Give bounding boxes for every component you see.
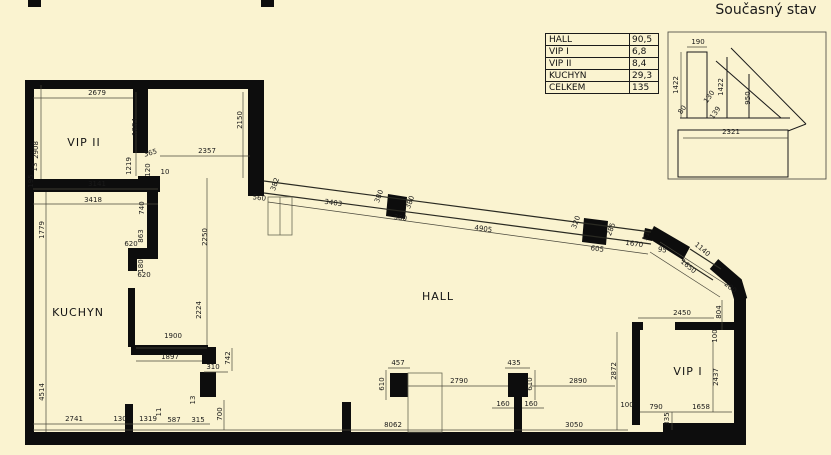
dim-label: 610 bbox=[526, 377, 534, 390]
dim-label: 2357 bbox=[198, 147, 216, 155]
dim-label: 620 bbox=[137, 271, 150, 279]
dim-label: 1670 bbox=[625, 239, 644, 249]
dim-label: 3403 bbox=[324, 198, 343, 208]
pillar-d bbox=[390, 373, 408, 397]
dim-label: 3418 bbox=[84, 196, 102, 204]
room-area: 6,8 bbox=[630, 46, 658, 57]
table-row: KUCHYN 29,3 bbox=[546, 69, 658, 81]
dim-label: 380 bbox=[373, 189, 385, 204]
dim-label: 100 bbox=[711, 329, 719, 342]
dim-label: 790 bbox=[649, 403, 662, 411]
dim-label: 1884 bbox=[131, 118, 139, 136]
dim-label: 740 bbox=[138, 201, 146, 214]
dim-label: 2150 bbox=[236, 111, 244, 129]
drawing-canvas: 2679290818842357215012193651012013195314… bbox=[0, 0, 831, 455]
dim-label: 2872 bbox=[610, 362, 618, 380]
room-area: 90,5 bbox=[630, 34, 658, 45]
room-name: KUCHYN bbox=[546, 70, 630, 81]
table-row: VIP I 6,8 bbox=[546, 45, 658, 57]
room-label: VIP II bbox=[67, 136, 100, 149]
room-label: VIP I bbox=[673, 365, 702, 378]
dim-label: 13 bbox=[189, 396, 197, 405]
dim-label: 700 bbox=[216, 407, 224, 420]
dim-label: 315 bbox=[191, 416, 204, 424]
room-name: HALL bbox=[546, 34, 630, 45]
dim-label: 100 bbox=[620, 401, 633, 409]
wall-vip1-top-a bbox=[632, 322, 643, 330]
room-area: 8,4 bbox=[630, 58, 658, 69]
frame-mark bbox=[261, 0, 274, 7]
wall-kuchyn-right-c bbox=[128, 288, 135, 347]
table-row: VIP II 8,4 bbox=[546, 57, 658, 69]
dim-label: 8062 bbox=[384, 421, 402, 429]
dim-label: 120 bbox=[144, 163, 152, 176]
dim-label: 2224 bbox=[195, 301, 203, 319]
detail-dim-label: 1422 bbox=[672, 76, 680, 94]
dim-label: 863 bbox=[137, 229, 145, 242]
wall-hall-left bbox=[248, 89, 264, 196]
detail-dim-label: 190 bbox=[691, 38, 704, 46]
wall-vip1-top-b bbox=[675, 322, 734, 330]
dim-label: 160 bbox=[524, 400, 537, 408]
dim-label: 2250 bbox=[201, 228, 209, 246]
dim-label: 195 bbox=[27, 174, 35, 187]
detail-dim-label: 1422 bbox=[717, 78, 725, 96]
dim-label: 435 bbox=[507, 359, 520, 367]
dim-label: 457 bbox=[391, 359, 404, 367]
dim-label: 320 bbox=[570, 215, 582, 230]
dim-label: 160 bbox=[496, 400, 509, 408]
table-row: CELKEM 135 bbox=[546, 81, 658, 93]
dim-label: 95 bbox=[657, 245, 667, 254]
room-label: KUCHYN bbox=[52, 306, 104, 319]
dim-label: 4905 bbox=[474, 224, 493, 234]
room-area: 135 bbox=[630, 82, 658, 93]
wall-vip2-bottom bbox=[25, 179, 138, 192]
dim-label: 804 bbox=[715, 305, 723, 319]
detail-dim-label: 2321 bbox=[722, 128, 740, 136]
page-title: Současný stav bbox=[700, 2, 831, 18]
wall-column-310 bbox=[200, 372, 216, 397]
dim-label: 2679 bbox=[88, 89, 106, 97]
dim-label: 742 bbox=[224, 351, 232, 364]
detail-dimension-lines bbox=[681, 47, 788, 138]
wall-kuchyn-right-a bbox=[147, 192, 158, 248]
wall-vip1-left bbox=[632, 330, 640, 425]
dim-label: 587 bbox=[167, 416, 180, 424]
wall-l-vertical bbox=[202, 347, 216, 364]
dim-label: 3050 bbox=[565, 421, 583, 429]
table-row: HALL 90,5 bbox=[546, 34, 658, 45]
dim-label: 1900 bbox=[164, 332, 182, 340]
wall-kuchyn-right-b bbox=[128, 259, 137, 271]
pillar-e bbox=[508, 373, 528, 397]
dim-label: 2790 bbox=[450, 377, 468, 385]
room-name: VIP II bbox=[546, 58, 630, 69]
pillar-b bbox=[582, 218, 608, 245]
dim-label: 310 bbox=[206, 363, 219, 371]
dim-label: 13 bbox=[31, 163, 39, 172]
dim-label: 560 bbox=[252, 193, 266, 203]
dim-label: 130 bbox=[113, 415, 126, 423]
dim-label: 1140 bbox=[693, 241, 712, 259]
dim-label: 1897 bbox=[161, 353, 179, 361]
room-area: 29,3 bbox=[630, 70, 658, 81]
wall-stub-pillar-e bbox=[514, 397, 522, 433]
dim-label: 335 bbox=[663, 412, 671, 425]
dim-label: 382 bbox=[269, 177, 281, 192]
dim-label: 1779 bbox=[38, 221, 46, 239]
wall-bottom bbox=[25, 432, 746, 445]
dim-label: 610 bbox=[378, 377, 386, 390]
dim-label: 1658 bbox=[692, 403, 710, 411]
dim-label: 11 bbox=[155, 408, 163, 417]
frame-mark bbox=[28, 0, 41, 7]
dim-label: 2908 bbox=[32, 141, 40, 159]
dim-label: 3141 bbox=[88, 180, 106, 188]
area-table: HALL 90,5 VIP I 6,8 VIP II 8,4 KUCHYN 29… bbox=[545, 33, 659, 94]
wall-left bbox=[25, 80, 34, 445]
wall-kuchyn-step bbox=[128, 248, 158, 259]
wall-right bbox=[734, 298, 746, 438]
dim-label: 4514 bbox=[38, 383, 46, 401]
room-label: HALL bbox=[422, 290, 454, 303]
dim-label: 2450 bbox=[673, 309, 691, 317]
room-name: CELKEM bbox=[546, 82, 630, 93]
detail-dim-label: 80 bbox=[677, 104, 689, 116]
dim-label: 1219 bbox=[125, 157, 133, 175]
dim-label: 2741 bbox=[65, 415, 83, 423]
wall-vip1-inner-bottom bbox=[663, 423, 734, 433]
dim-label: 2437 bbox=[712, 368, 720, 386]
dim-label: 360 bbox=[393, 213, 407, 223]
fixtures bbox=[268, 197, 442, 432]
wall-top bbox=[25, 80, 264, 89]
room-name: VIP I bbox=[546, 46, 630, 57]
detail-dim-label: 130 bbox=[702, 89, 716, 105]
dim-label: 620 bbox=[124, 240, 137, 248]
dim-label: 605 bbox=[590, 244, 604, 254]
floorplan-svg: 2679290818842357215012193651012013195314… bbox=[0, 0, 831, 455]
dim-label: 2890 bbox=[569, 377, 587, 385]
wall-vip2-partition-lower bbox=[138, 176, 160, 192]
detail-dim-label: 950 bbox=[744, 91, 752, 104]
dim-label: 10 bbox=[161, 168, 170, 176]
